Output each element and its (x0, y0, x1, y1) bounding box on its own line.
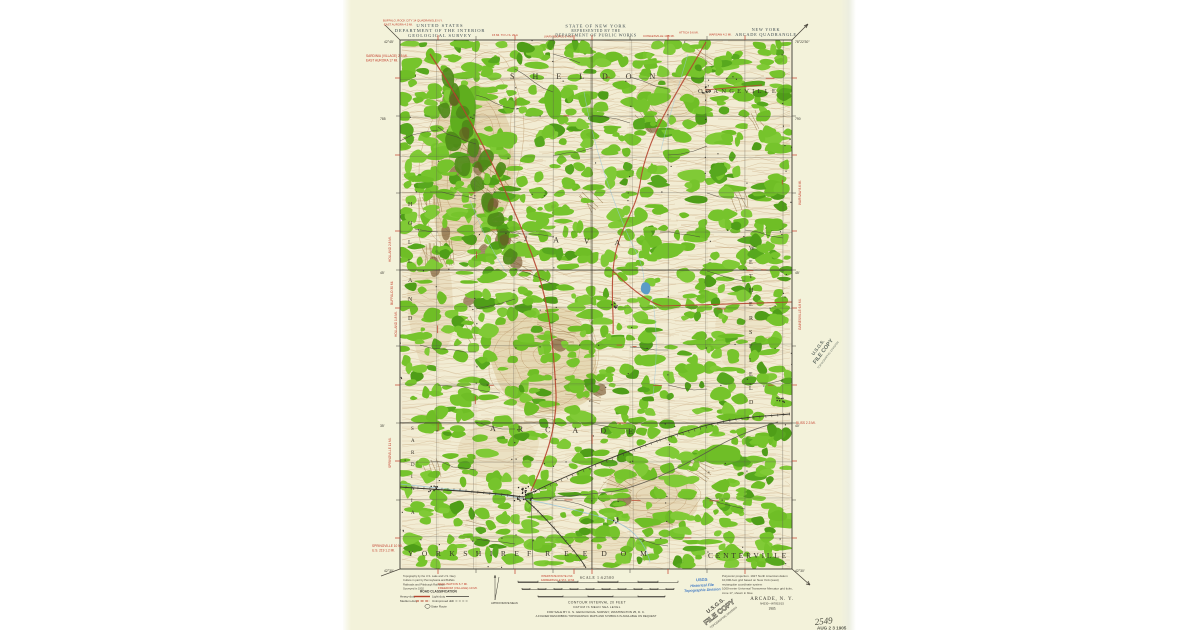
svg-text:BLISS 2.3 MI.: BLISS 2.3 MI. (796, 421, 816, 425)
svg-text:I: I (749, 358, 751, 364)
svg-text:Topography by the U.S. Lake an: Topography by the U.S. Lake and U.S. Nav… (403, 574, 456, 578)
svg-text:SPRINGVILLE 10 MI.: SPRINGVILLE 10 MI. (372, 544, 403, 548)
svg-text:ROAD CLASSIFICATION: ROAD CLASSIFICATION (420, 590, 457, 594)
svg-text:(VARYSBURG) 6.4 MI.: (VARYSBURG) 6.4 MI. (544, 35, 574, 39)
svg-text:N: N (411, 487, 415, 492)
svg-text:A: A (408, 278, 413, 284)
svg-text:DATUM IS MEAN SEA LEVEL: DATUM IS MEAN SEA LEVEL (573, 605, 620, 609)
svg-text:APPROXIMATE MEAN: APPROXIMATE MEAN (491, 601, 518, 605)
svg-text:ATTICA 9.6 MI.: ATTICA 9.6 MI. (679, 31, 699, 35)
svg-text:D: D (749, 400, 754, 406)
svg-text:HOLLAND 2.8 MI.: HOLLAND 2.8 MI. (388, 236, 392, 262)
svg-text:D: D (408, 316, 413, 322)
svg-text:42°30′: 42°30′ (384, 569, 394, 573)
svg-text:45′: 45′ (795, 271, 800, 275)
svg-text:AUG 2 3 1905: AUG 2 3 1905 (817, 626, 847, 630)
svg-text:W: W (749, 246, 755, 252)
svg-text:ARCADE QUADRANGLE: ARCADE QUADRANGLE (735, 32, 797, 37)
svg-text:EAST AURORA 17 MI.: EAST AURORA 17 MI. (366, 59, 398, 63)
svg-text:Light-duty: Light-duty (432, 595, 446, 599)
svg-text:STATE OF NEW YORK: STATE OF NEW YORK (565, 24, 626, 29)
svg-text:790: 790 (795, 117, 801, 121)
svg-text:T: T (749, 274, 753, 280)
svg-text:WARSAW 4.2 MI.: WARSAW 4.2 MI. (709, 33, 732, 37)
svg-text:15 MI. TO U.S. 20 A: 15 MI. TO U.S. 20 A (492, 33, 518, 37)
svg-text:YORKSHIRE: YORKSHIRE (408, 549, 527, 558)
svg-text:A: A (411, 439, 415, 444)
svg-text:45′: 45′ (380, 271, 385, 275)
svg-text:N4230—W7815/15: N4230—W7815/15 (760, 602, 784, 606)
svg-text:State Route: State Route (431, 605, 447, 609)
svg-text:Heavy-duty: Heavy-duty (400, 595, 416, 599)
svg-text:INTERSTATE ROUTE 2 MI.: INTERSTATE ROUTE 2 MI. (541, 574, 573, 578)
svg-text:zone 17, shown in blue: zone 17, shown in blue (722, 591, 753, 595)
svg-text:SARDINIA (VILLAGE) 2.5 MI.: SARDINIA (VILLAGE) 2.5 MI. (366, 54, 408, 58)
svg-text:BUFFALO 30 MI.: BUFFALO 30 MI. (390, 281, 394, 305)
svg-text:A FOLDER DESCRIBING TOPOGRAPHI: A FOLDER DESCRIBING TOPOGRAPHIC MAPS AND… (536, 614, 657, 618)
svg-text:42°45′: 42°45′ (384, 40, 394, 44)
svg-text:L: L (749, 386, 753, 392)
svg-text:H: H (408, 202, 413, 208)
svg-text:42°30′: 42°30′ (795, 569, 805, 573)
svg-text:SCALE 1:62500: SCALE 1:62500 (580, 575, 615, 580)
svg-text:R: R (749, 316, 753, 322)
svg-text:FREEDOM: FREEDOM (527, 549, 661, 558)
svg-text:COWLESVILLE 10.5 MI.: COWLESVILLE 10.5 MI. (643, 34, 675, 38)
svg-text:35′: 35′ (380, 424, 385, 428)
svg-text:USGS: USGS (696, 577, 708, 583)
svg-text:Unimproved dirt: Unimproved dirt (432, 599, 453, 603)
svg-text:SHELDON: SHELDON (510, 72, 673, 81)
svg-text:SPRINGVILLE 11 MI.: SPRINGVILLE 11 MI. (388, 437, 392, 468)
svg-text:S: S (749, 330, 752, 336)
svg-text:L: L (408, 240, 412, 246)
svg-text:S: S (411, 427, 414, 432)
svg-text:·EAST AURORA 4.5 MI.: ·EAST AURORA 4.5 MI. (383, 23, 413, 27)
svg-text:E: E (749, 260, 753, 266)
svg-text:1905: 1905 (768, 607, 775, 611)
svg-text:GAINESVILLE 6.8 MI.: GAINESVILLE 6.8 MI. (798, 299, 802, 330)
svg-text:GEOLOGICAL SURVEY: GEOLOGICAL SURVEY (408, 33, 472, 38)
svg-text:L: L (408, 259, 412, 265)
svg-text:U.S. 219 1.2 MI.: U.S. 219 1.2 MI. (372, 549, 395, 553)
svg-text:Medium-duty: Medium-duty (400, 599, 418, 603)
svg-text:A: A (411, 511, 415, 516)
svg-text:ORANGEVILLE: ORANGEVILLE (698, 88, 779, 95)
svg-text:D: D (411, 463, 415, 468)
svg-text:H: H (749, 288, 754, 294)
svg-text:HOLLAND 1.8 MI.: HOLLAND 1.8 MI. (394, 311, 398, 337)
svg-text:CENTERVILLE: CENTERVILLE (708, 551, 789, 560)
svg-text:E: E (749, 302, 753, 308)
svg-text:WARSAW 8.6 MI.: WARSAW 8.6 MI. (798, 180, 802, 205)
svg-text:78°22′30″: 78°22′30″ (795, 40, 810, 44)
svg-text:785: 785 (380, 117, 386, 121)
svg-text:N: N (408, 297, 413, 303)
svg-text:E: E (749, 372, 753, 378)
svg-text:O: O (408, 221, 413, 227)
